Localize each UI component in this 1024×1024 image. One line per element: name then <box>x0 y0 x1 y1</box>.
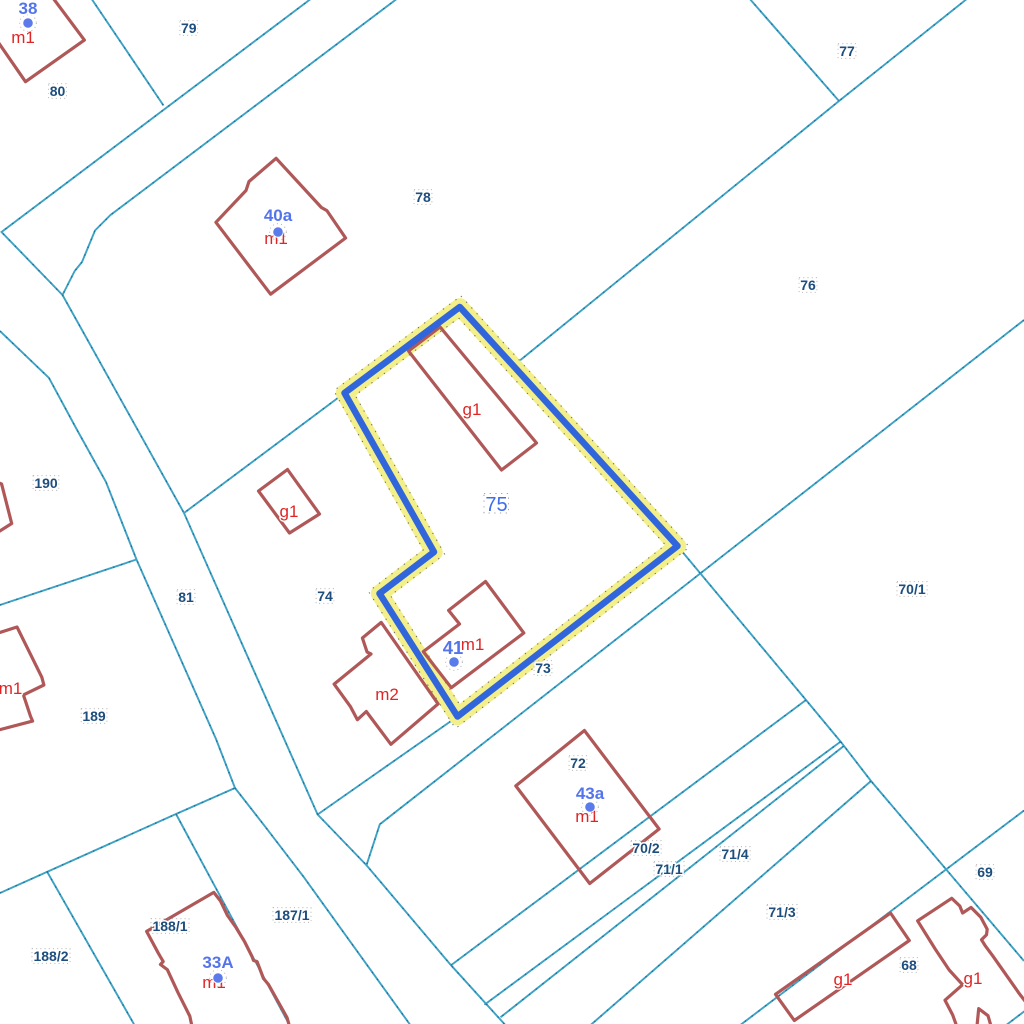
svg-text:33A: 33A <box>202 953 233 972</box>
svg-text:m2: m2 <box>375 685 399 704</box>
svg-text:73: 73 <box>535 660 551 676</box>
svg-text:43a: 43a <box>576 784 605 803</box>
svg-text:76: 76 <box>800 277 816 293</box>
svg-text:71/3: 71/3 <box>768 904 795 920</box>
svg-text:74: 74 <box>317 588 333 604</box>
svg-text:m1: m1 <box>0 679 22 698</box>
svg-text:40a: 40a <box>264 206 293 225</box>
svg-text:68: 68 <box>901 957 917 973</box>
svg-text:m1: m1 <box>461 635 485 654</box>
svg-text:78: 78 <box>415 189 431 205</box>
svg-text:77: 77 <box>839 43 855 59</box>
svg-text:75: 75 <box>485 494 507 516</box>
svg-text:80: 80 <box>50 83 66 99</box>
svg-text:71/4: 71/4 <box>721 846 748 862</box>
svg-text:188/2: 188/2 <box>33 948 68 964</box>
svg-text:69: 69 <box>977 864 993 880</box>
svg-text:70/1: 70/1 <box>898 581 925 597</box>
svg-text:71/1: 71/1 <box>655 861 682 877</box>
svg-text:188/1: 188/1 <box>152 918 187 934</box>
svg-text:m1: m1 <box>11 28 35 47</box>
svg-text:70/2: 70/2 <box>632 840 659 856</box>
svg-text:72: 72 <box>570 755 586 771</box>
svg-text:41: 41 <box>443 637 464 658</box>
svg-text:g1: g1 <box>280 502 299 521</box>
svg-text:190: 190 <box>34 475 58 491</box>
svg-text:81: 81 <box>178 589 194 605</box>
svg-text:38: 38 <box>19 0 38 18</box>
svg-text:g1: g1 <box>964 969 983 988</box>
svg-text:g1: g1 <box>463 400 482 419</box>
svg-text:187/1: 187/1 <box>274 907 309 923</box>
svg-text:189: 189 <box>82 708 106 724</box>
svg-text:79: 79 <box>181 20 197 36</box>
svg-text:g1: g1 <box>834 970 853 989</box>
